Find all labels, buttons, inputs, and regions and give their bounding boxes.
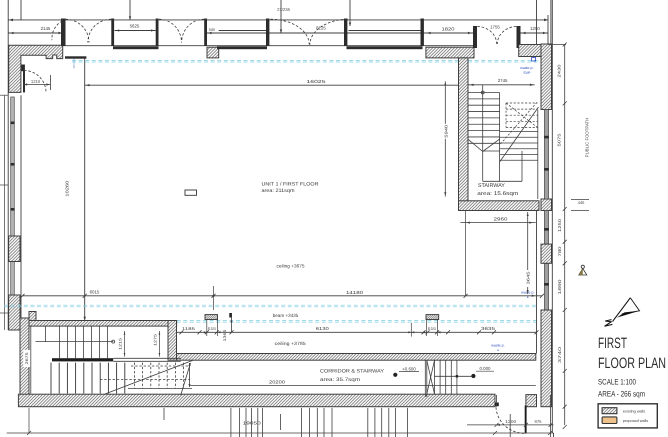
svg-text:2675: 2675 (25, 352, 29, 364)
svg-text:UNIT 1 / FIRST FLOOR: UNIT 1 / FIRST FLOOR (262, 181, 319, 187)
svg-text:975: 975 (535, 419, 543, 424)
svg-text:445: 445 (578, 200, 585, 205)
svg-text:2745: 2745 (498, 78, 508, 83)
svg-text:2960: 2960 (494, 216, 509, 221)
svg-text:1215: 1215 (119, 338, 123, 350)
svg-text:6015: 6015 (90, 290, 100, 295)
svg-text:FLOOR PLAN: FLOOR PLAN (598, 355, 666, 372)
svg-text:1890: 1890 (557, 278, 562, 294)
svg-text:5940: 5940 (443, 124, 448, 138)
svg-text:area: 211sqm: area: 211sqm (262, 188, 295, 194)
svg-text:1755: 1755 (490, 25, 500, 30)
svg-text:1250: 1250 (557, 218, 562, 232)
svg-text:waste p.: waste p. (491, 344, 504, 348)
svg-text:existing walls: existing walls (623, 410, 645, 414)
svg-text:area: 35.7sqm: area: 35.7sqm (320, 377, 360, 383)
svg-text:1250: 1250 (530, 26, 540, 31)
svg-text:beam +3435: beam +3435 (273, 313, 299, 318)
svg-text:14180: 14180 (346, 290, 364, 295)
svg-text:PUBLIC FOOTPATH: PUBLIC FOOTPATH (585, 118, 590, 157)
svg-text:19050: 19050 (243, 421, 262, 426)
svg-text:STAIRWAY: STAIRWAY (478, 183, 505, 189)
svg-text:1820: 1820 (442, 27, 456, 32)
svg-text:●: ● (497, 348, 499, 352)
svg-text:SCALE 1:100: SCALE 1:100 (598, 377, 636, 386)
svg-text:780: 780 (557, 245, 562, 256)
svg-text:21/235: 21/235 (277, 7, 290, 12)
svg-text:2145: 2145 (41, 26, 51, 31)
svg-text:515: 515 (208, 327, 217, 331)
svg-text:+0.600: +0.600 (402, 367, 416, 372)
svg-text:ceiling +3785: ceiling +3785 (275, 341, 307, 346)
svg-text:5075: 5075 (557, 132, 562, 146)
svg-text:0.000: 0.000 (480, 366, 492, 371)
svg-text:1365: 1365 (223, 330, 227, 342)
svg-text:SVP: SVP (523, 71, 531, 75)
svg-text:10260: 10260 (65, 180, 70, 197)
svg-text:FIRST: FIRST (598, 335, 627, 352)
svg-text:3645: 3645 (526, 270, 531, 284)
svg-text:proposed walls: proposed walls (623, 419, 648, 423)
svg-text:505: 505 (209, 28, 215, 32)
svg-text:1275: 1275 (153, 334, 157, 346)
svg-text:1185: 1185 (182, 326, 196, 331)
svg-text:ceiling +3675: ceiling +3675 (277, 264, 305, 269)
svg-text:5625: 5625 (130, 24, 140, 29)
svg-text:20200: 20200 (269, 379, 286, 384)
svg-text:2430: 2430 (557, 63, 562, 77)
svg-text:1200: 1200 (505, 419, 517, 424)
svg-text:area: 15.6sqm: area: 15.6sqm (477, 191, 519, 197)
svg-text:AREA - 266 sqm: AREA - 266 sqm (598, 389, 645, 398)
svg-text:CORRIDOR & STAIRWAY: CORRIDOR & STAIRWAY (320, 369, 385, 375)
svg-text:3635: 3635 (481, 326, 496, 331)
svg-text:6130: 6130 (316, 326, 330, 331)
svg-text:1210: 1210 (31, 79, 41, 84)
svg-text:515: 515 (428, 327, 437, 331)
svg-text:3740: 3740 (557, 346, 562, 363)
svg-text:waste p.: waste p. (520, 66, 533, 70)
svg-text:16025: 16025 (307, 79, 327, 84)
